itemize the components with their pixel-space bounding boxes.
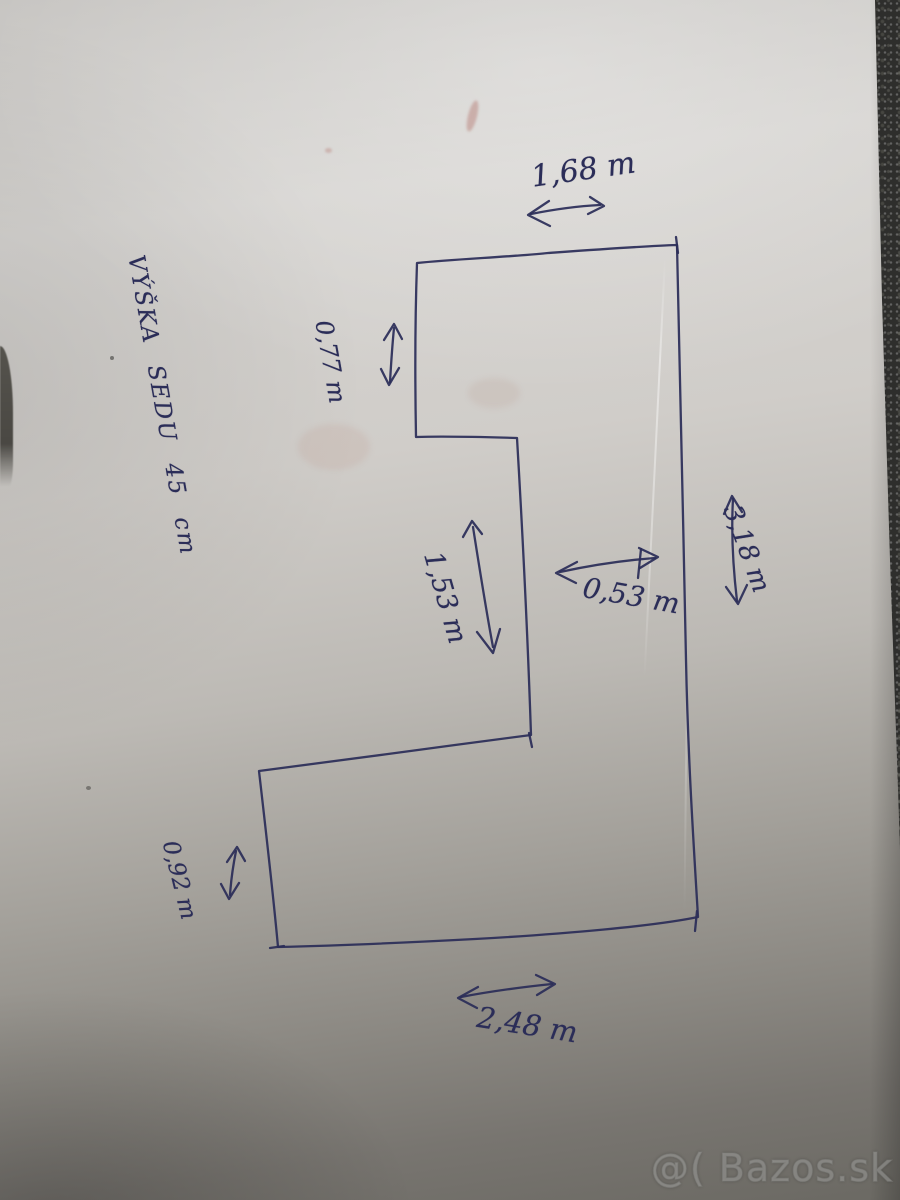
dim-arrow-248-head-left	[458, 987, 478, 1008]
dim-arrow-153	[473, 527, 493, 647]
photo-of-paper-sketch: 1,68 m 0,77 m VÝŠKA SEDU 45 cm 1,53 m 0,…	[0, 0, 900, 1200]
corner-overshoot	[695, 911, 697, 931]
dim-arrow-153-head-bottom	[477, 629, 500, 653]
dim-arrow-053-tick	[638, 549, 641, 578]
dim-arrow-077	[390, 328, 394, 382]
bazos-watermark: @( Bazos.sk	[651, 1146, 893, 1190]
dim-arrow-053-head-left	[556, 562, 577, 583]
